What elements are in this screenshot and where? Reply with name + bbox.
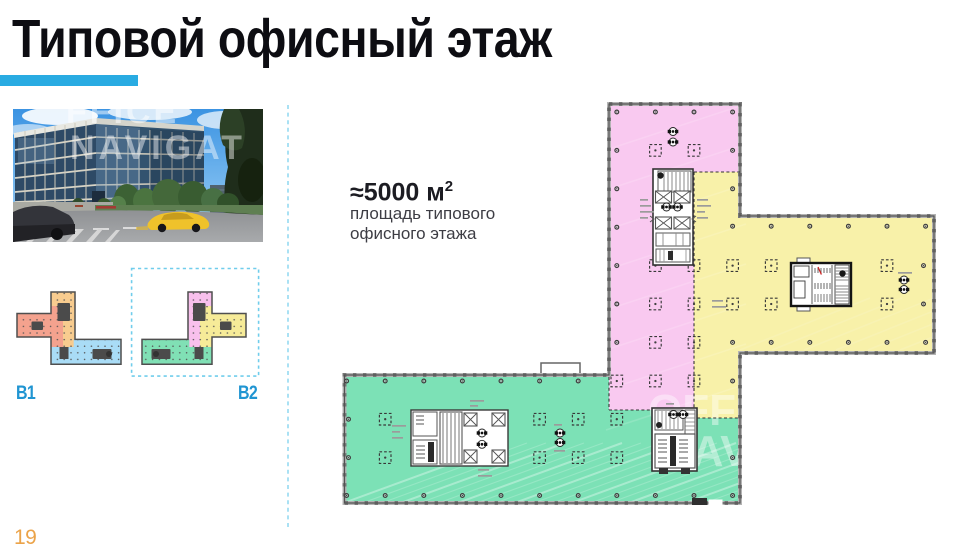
svg-text:FFICE: FFICE [66, 93, 179, 131]
svg-text:NAVIGAT: NAVIGAT [70, 129, 246, 167]
